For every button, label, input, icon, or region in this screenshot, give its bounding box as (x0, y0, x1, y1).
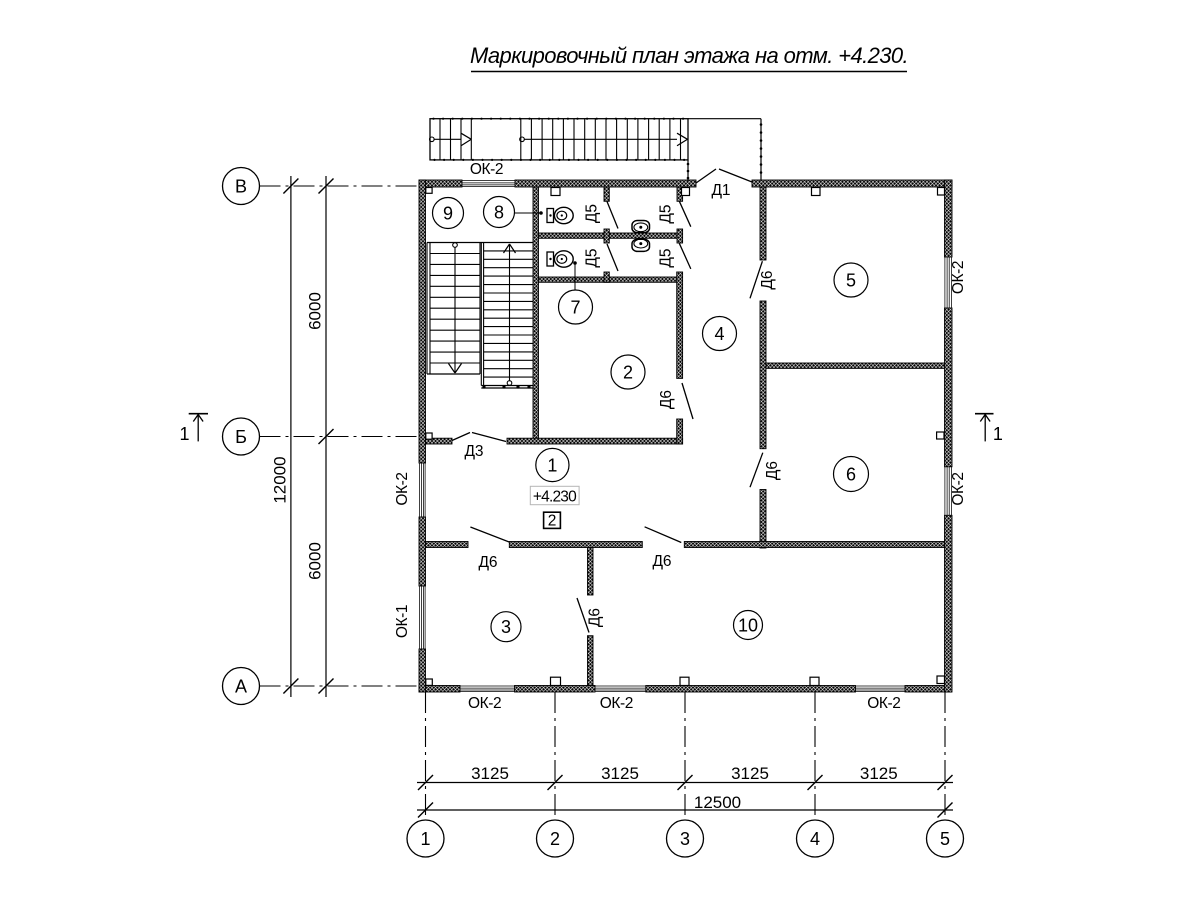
svg-text:1: 1 (420, 829, 430, 849)
svg-text:Д5: Д5 (658, 248, 675, 267)
svg-text:А: А (235, 677, 247, 697)
svg-text:12500: 12500 (694, 793, 741, 812)
svg-text:ОК-2: ОК-2 (470, 161, 503, 178)
svg-text:7: 7 (570, 297, 580, 317)
svg-text:Д6: Д6 (652, 553, 671, 570)
svg-text:Д5: Д5 (584, 204, 601, 223)
svg-text:12000: 12000 (270, 456, 289, 503)
svg-text:Д6: Д6 (658, 390, 675, 409)
svg-text:Д6: Д6 (759, 270, 776, 289)
svg-text:4: 4 (810, 829, 820, 849)
svg-text:1: 1 (179, 424, 189, 444)
svg-text:3: 3 (680, 829, 690, 849)
svg-text:3: 3 (501, 617, 511, 637)
svg-text:2: 2 (623, 362, 633, 382)
svg-text:Д5: Д5 (658, 204, 675, 223)
svg-text:9: 9 (443, 203, 453, 223)
svg-text:Д1: Д1 (711, 182, 730, 199)
svg-text:Д3: Д3 (464, 443, 483, 460)
svg-text:ОК-2: ОК-2 (468, 695, 501, 712)
svg-text:8: 8 (494, 202, 504, 222)
svg-text:ОК-2: ОК-2 (950, 472, 967, 505)
svg-text:3125: 3125 (471, 764, 509, 783)
svg-text:4: 4 (714, 324, 724, 344)
svg-text:Д6: Д6 (764, 461, 781, 480)
svg-text:10: 10 (738, 615, 758, 635)
svg-text:5: 5 (846, 270, 856, 290)
svg-text:2: 2 (548, 512, 557, 529)
svg-text:+4.230: +4.230 (533, 488, 577, 505)
svg-text:3125: 3125 (860, 764, 898, 783)
svg-text:Д6: Д6 (478, 554, 497, 571)
svg-text:6000: 6000 (306, 542, 325, 580)
svg-text:2: 2 (550, 829, 560, 849)
svg-text:Б: Б (235, 427, 247, 447)
svg-text:3125: 3125 (601, 764, 639, 783)
svg-text:1: 1 (547, 455, 557, 475)
svg-text:ОК-2: ОК-2 (600, 695, 633, 712)
svg-text:3125: 3125 (731, 764, 769, 783)
svg-text:ОК-2: ОК-2 (394, 472, 411, 505)
svg-text:Д5: Д5 (584, 248, 601, 267)
svg-text:В: В (235, 177, 247, 197)
svg-text:ОК-1: ОК-1 (394, 605, 411, 638)
svg-text:1: 1 (993, 424, 1003, 444)
svg-text:Маркировочный план этажа на от: Маркировочный план этажа на отм. +4.230. (470, 43, 908, 68)
svg-text:5: 5 (940, 829, 950, 849)
svg-text:ОК-2: ОК-2 (950, 261, 967, 294)
svg-text:6000: 6000 (306, 292, 325, 330)
svg-text:ОК-2: ОК-2 (867, 695, 900, 712)
svg-text:6: 6 (846, 464, 856, 484)
svg-text:Д6: Д6 (587, 608, 604, 627)
